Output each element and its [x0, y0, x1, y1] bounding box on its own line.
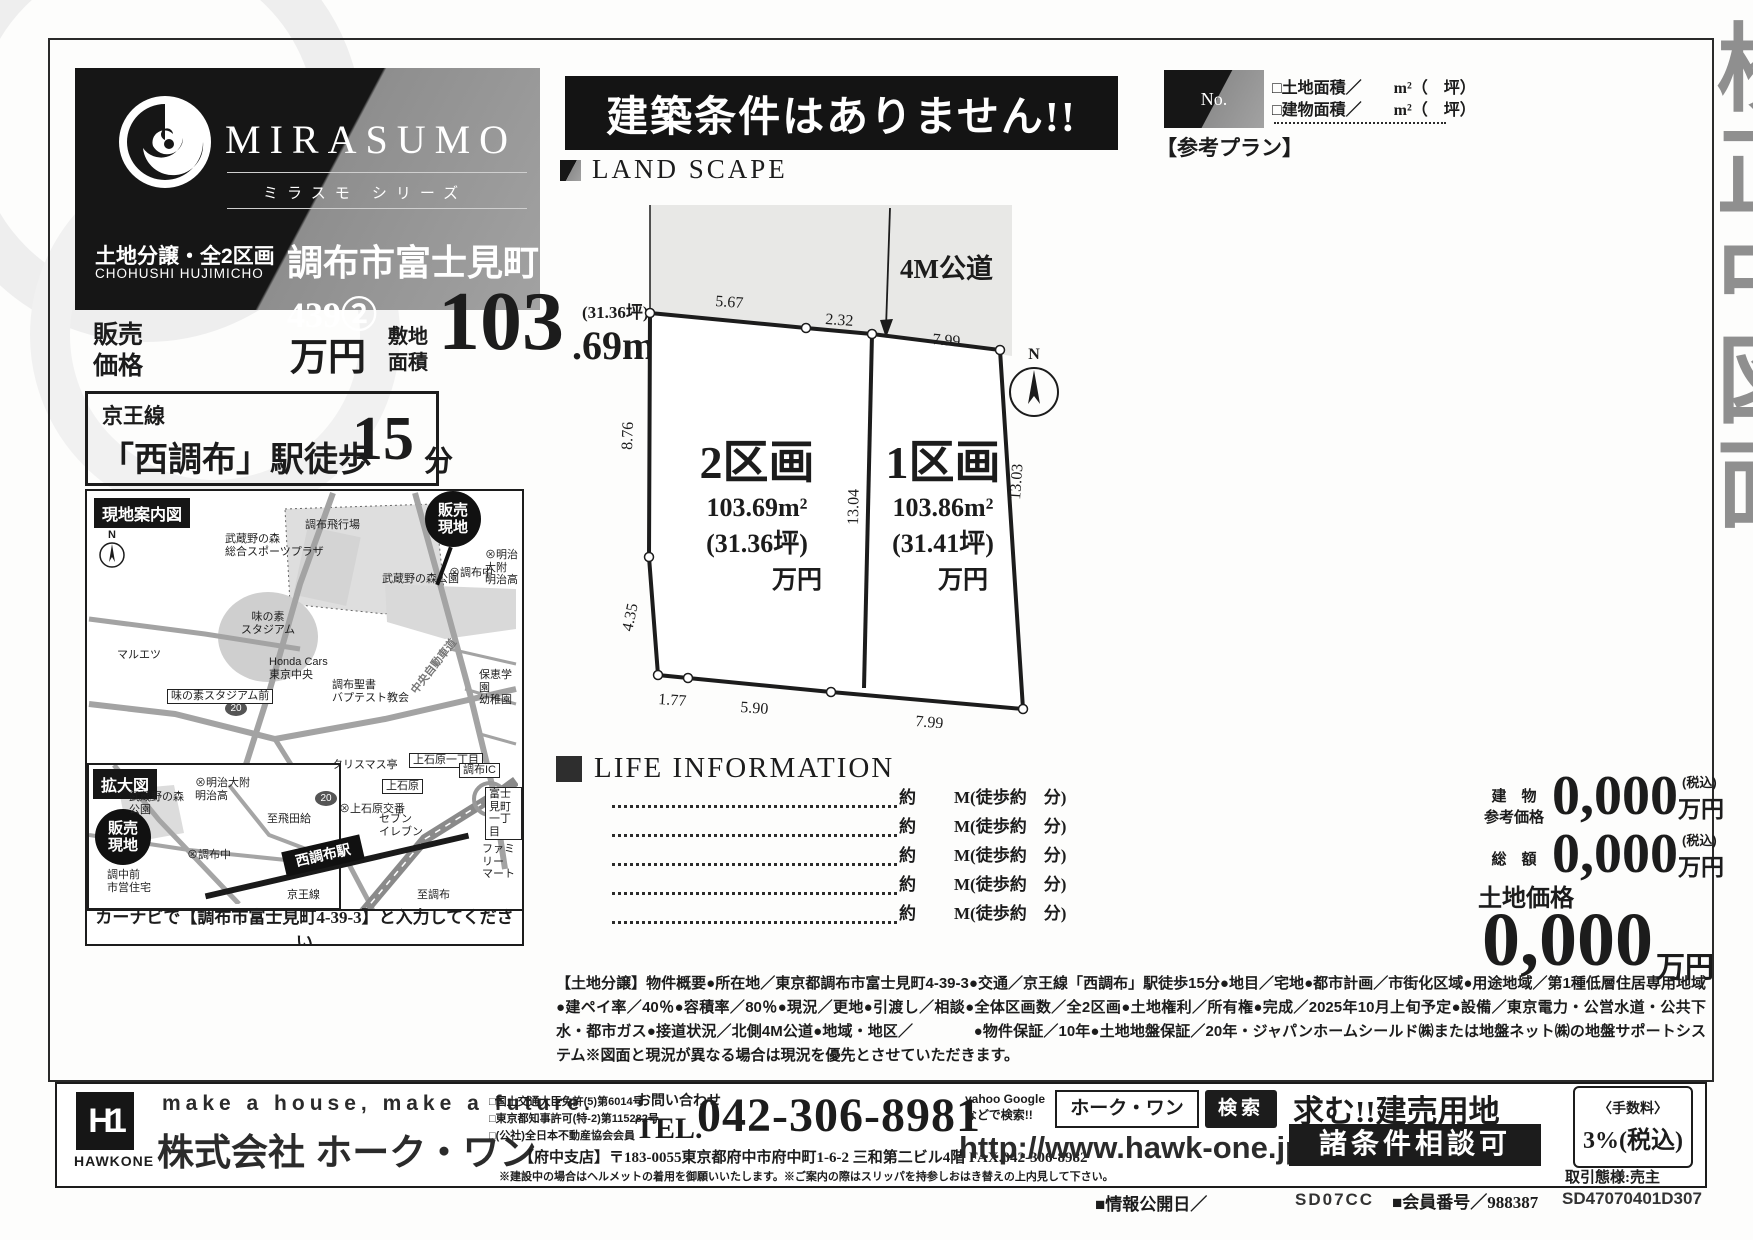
- dim-left-2: 4.35: [619, 602, 641, 633]
- map-label-musashino-park: 武蔵野の森公園: [382, 573, 459, 586]
- dim-left-1: 8.76: [619, 422, 637, 451]
- life-approx: 約: [899, 841, 916, 866]
- doc-code-1: SD07CC: [1295, 1190, 1374, 1210]
- walk-minutes-suffix: 分: [424, 438, 453, 480]
- plan-dotted-line: [1274, 108, 1446, 124]
- info-release-date: ■情報公開日／: [1095, 1190, 1207, 1215]
- building-price-tax: (税込): [1682, 772, 1717, 791]
- search-button: 検索: [1205, 1090, 1277, 1128]
- total-price-label: 総 額: [1480, 848, 1548, 869]
- map-label-airport: 調布飛行場: [305, 519, 360, 532]
- lot2-price-unit: 万円: [772, 560, 822, 596]
- total-price-tax: (税込): [1682, 830, 1717, 849]
- brand-header-block: MIRASUMO ミラスモ シリーズ 土地分譲・全2区画 CHOHUSHI HU…: [75, 68, 540, 310]
- lot2-info: 2区画 103.69m² (31.36坪): [662, 438, 852, 560]
- life-approx: 約: [899, 870, 916, 895]
- life-approx: 約: [899, 812, 916, 837]
- dim-top-2: 2.32: [825, 311, 854, 330]
- life-dotted-line: [612, 834, 897, 837]
- life-dotted-line: [612, 921, 897, 924]
- lot1-info: 1区画 103.86m² (31.41坪): [848, 438, 1038, 560]
- map-label-meiji-high-2: ⊗明治大附 明治高: [195, 777, 250, 802]
- walk-minutes: 15: [352, 408, 414, 470]
- map-compass-n: N: [97, 529, 127, 541]
- fee-box: 〈手数料〉 3%(税込): [1573, 1086, 1693, 1168]
- lot1-name: 1区画: [848, 438, 1038, 489]
- license-line-3: □(公社)全日本不動産協会会員: [489, 1128, 659, 1145]
- life-info-icon: [556, 756, 582, 782]
- sale-site-marker: 販売 現地: [425, 491, 481, 547]
- building-price-label-line1: 建 物: [1480, 786, 1548, 807]
- station-walk-text: 「西調布」駅徒歩: [100, 432, 372, 481]
- plan-number-box: No.: [1164, 70, 1264, 128]
- total-price-unit: 万円: [1678, 848, 1724, 882]
- dim-bottom-3: 7.99: [915, 713, 944, 728]
- land-price-value: 0,000: [1482, 902, 1653, 978]
- footer-company-name: 株式会社 ホーク・ワン: [157, 1122, 537, 1176]
- compass-icon: [1006, 364, 1062, 420]
- rail-line-name: 京王線: [102, 400, 165, 430]
- site-area-label: 敷地 面積: [388, 324, 428, 376]
- search-keyword-box: ホーク・ワン: [1055, 1090, 1199, 1128]
- map-label-sports-plaza: 武蔵野の森 総合スポーツプラザ: [225, 533, 324, 558]
- lot1-area: 103.86m²: [848, 493, 1038, 523]
- plan-number-label: No.: [1201, 89, 1228, 110]
- building-price-label: 建 物 参考価格: [1480, 786, 1548, 828]
- lot2-name: 2区画: [662, 438, 852, 489]
- brand-series: ミラスモ シリーズ: [263, 182, 467, 203]
- fee-label: 〈手数料〉: [1575, 1098, 1691, 1118]
- life-dotted-line: [612, 863, 897, 866]
- land-area-checklist: □土地面積／ m²（ 坪）: [1272, 74, 1476, 98]
- map-label-musashino-park-2: 武蔵野の森 公園: [129, 791, 184, 816]
- mirasumo-swirl-logo-icon: [117, 94, 213, 190]
- property-outline-text: 【土地分譲】物件概要●所在地／東京都調布市富士見町4-39-3●交通／京王線「西…: [556, 972, 1706, 1068]
- dim-top-1: 5.67: [715, 293, 744, 312]
- map-compass: N: [97, 529, 127, 574]
- life-walk: M(徒歩約 分): [954, 841, 1066, 866]
- map-label-chofu-jhs: ⊗調布中: [449, 567, 493, 580]
- life-row: 約 M(徒歩約 分): [612, 873, 1082, 895]
- map-label-to-chofu: 至調布: [417, 889, 450, 902]
- brand-divider: [227, 208, 527, 209]
- map-label-seven-eleven: セブン イレブン: [379, 813, 423, 838]
- sale-type-romaji: CHOHUSHI HUJIMICHO: [95, 266, 264, 281]
- map-label-keio-line: 京王線: [287, 889, 320, 902]
- sale-site-marker-enlarged: 販売 現地: [95, 809, 151, 865]
- footer-note: ※建設中の場合はヘルメットの着用を御願いいたします。※ご案内の際はスリッパを持参…: [499, 1168, 1114, 1184]
- hawkone-logo-icon: H1: [76, 1092, 134, 1150]
- footer-url: http://www.hawk-one.jp/: [959, 1130, 1313, 1166]
- sale-price-unit: 万円: [290, 326, 366, 381]
- site-area-value: 103: [438, 280, 564, 364]
- map-label-chofu-ic: 調布IC: [459, 763, 500, 778]
- map-label-chofu-jhs-2: ⊗調布中: [187, 849, 231, 862]
- flyer-page: { "watermark": "校正中図面", "header": { "bra…: [0, 0, 1753, 1240]
- license-line-1: □国土交通大臣免許(5)第6014号: [489, 1094, 659, 1111]
- reference-plan-title: 【参考プラン】: [1156, 132, 1303, 162]
- member-number: ■会員番号／988387: [1392, 1188, 1538, 1213]
- life-approx: 約: [899, 783, 916, 808]
- landscape-section-icon: [560, 160, 581, 181]
- diagram-compass: N: [1006, 346, 1062, 422]
- life-row: 約 M(徒歩約 分): [612, 844, 1082, 866]
- no-building-conditions-banner: 建築条件はありません!!: [565, 76, 1118, 150]
- map-label-maruetsu: マルエツ: [117, 649, 161, 662]
- footer-band: H1 HAWKONE make a house, make a future. …: [55, 1082, 1707, 1188]
- map-label-to-tobitakyu: 至飛田給: [267, 813, 311, 826]
- license-line-2: □東京都知事許可(特-2)第115282号: [489, 1111, 659, 1128]
- life-row: 約 M(徒歩約 分): [612, 786, 1082, 808]
- proof-watermark: 校正中図面: [1706, 18, 1753, 638]
- life-dotted-line: [612, 805, 897, 808]
- lot2-tsubo: (31.36坪): [662, 523, 852, 560]
- dim-top-3: 7.99: [932, 331, 961, 350]
- brand-name: MIRASUMO: [225, 116, 517, 163]
- doc-code-2: SD47070401D307: [1562, 1189, 1702, 1209]
- car-navi-text: カーナビで【調布市富士見町4-39-3】と入力してください: [87, 903, 522, 947]
- footer-licenses: □国土交通大臣免許(5)第6014号 □東京都知事許可(特-2)第115282号…: [489, 1094, 659, 1145]
- area-map-block: 西調布駅 現地案内図 拡大図 N 販売 現地 販売 現地 20 20 武蔵野の森…: [85, 489, 524, 946]
- lot1-tsubo: (31.41坪): [848, 523, 1038, 560]
- dim-bottom-1: 1.77: [658, 691, 687, 710]
- life-walk: M(徒歩約 分): [954, 899, 1066, 924]
- life-row: 約 M(徒歩約 分): [612, 902, 1082, 924]
- building-price-label-line2: 参考価格: [1480, 807, 1548, 828]
- hawkone-logo: H1 HAWKONE: [74, 1092, 136, 1169]
- map-label-hoiku-gakuen: 保恵学園 幼稚園: [479, 669, 522, 707]
- life-walk: M(徒歩約 分): [954, 870, 1066, 895]
- banner-text: 建築条件はありません!!: [606, 83, 1077, 144]
- life-approx: 約: [899, 899, 916, 924]
- brand-divider: [227, 172, 527, 173]
- map-label-honda-cars: Honda Cars 東京中央: [269, 656, 328, 681]
- map-label-ajinomoto-stadium: 味の素 スタジアム: [235, 611, 301, 636]
- life-walk: M(徒歩約 分): [954, 812, 1066, 837]
- building-price-unit: 万円: [1678, 790, 1724, 824]
- map-label-fujimicho-1chome: 富士見町 一丁目: [485, 787, 522, 840]
- map-label-family-mart: ファミリー マート: [482, 843, 522, 881]
- search-engines-note: yahoo Google などで検索!!: [965, 1092, 1045, 1123]
- life-info-title: LIFE INFORMATION: [594, 752, 894, 785]
- hawkone-logo-text: HAWKONE: [74, 1153, 136, 1169]
- negotiable-banner: 諸条件相談可: [1289, 1124, 1541, 1166]
- map-label-christmas-tei: クリスマス亭: [332, 759, 398, 772]
- map-label-kamiishihara: 上石原: [382, 779, 423, 794]
- fee-value: 3%(税込): [1575, 1120, 1691, 1155]
- building-price-value: 0,000: [1552, 768, 1678, 824]
- lot1-price-unit: 万円: [938, 560, 988, 596]
- footer-tel-number: 042-306-8981: [697, 1088, 981, 1143]
- route-20-badge: 20: [315, 791, 337, 806]
- footer-tel-prefix: TEL.: [635, 1112, 703, 1146]
- map-label-shiei-jutaku: 調中前 市営住宅: [107, 869, 151, 894]
- deal-type: 取引態様:売主: [1565, 1166, 1660, 1187]
- dim-bottom-2: 5.90: [740, 699, 769, 718]
- life-walk: M(徒歩約 分): [954, 783, 1066, 808]
- total-price-value: 0,000: [1552, 826, 1678, 882]
- life-row: 約 M(徒歩約 分): [612, 815, 1082, 837]
- compass-n-label: N: [1006, 346, 1062, 364]
- car-navi-strip: カーナビで【調布市富士見町4-39-3】と入力してください: [87, 909, 522, 944]
- sale-price-label: 販売 価格: [93, 320, 143, 383]
- map-label-stadium-mae: 味の素スタジアム前: [167, 689, 273, 704]
- road-label: 4M公道: [900, 253, 993, 284]
- map-compass-icon: [98, 541, 126, 569]
- station-access-box: 京王線 「西調布」駅徒歩 15 分: [85, 391, 439, 486]
- map-label-baptist-church: 調布聖書 バプテスト教会: [332, 679, 409, 704]
- life-dotted-line: [612, 892, 897, 895]
- map-guide-title: 現地案内図: [94, 498, 190, 528]
- lot2-area: 103.69m²: [662, 493, 852, 523]
